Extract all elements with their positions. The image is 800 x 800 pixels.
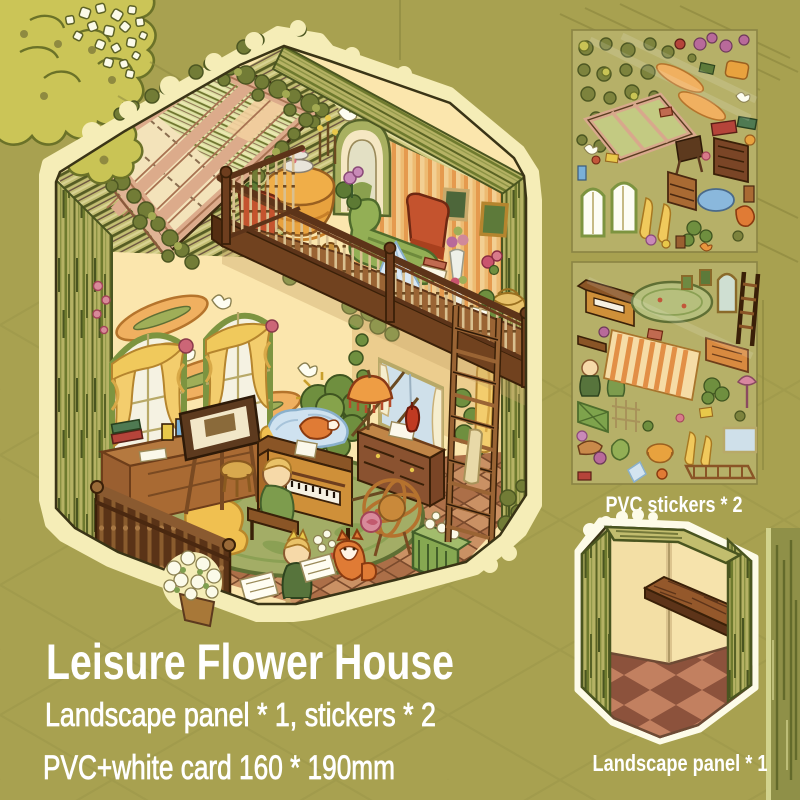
svg-text:Landscape panel * 1: Landscape panel * 1 <box>593 750 768 776</box>
svg-text:Leisure Flower House: Leisure Flower House <box>46 634 454 690</box>
svg-text:PVC+white card 160 * 190mm: PVC+white card 160 * 190mm <box>43 749 395 787</box>
svg-text:Landscape panel * 1, stickers: Landscape panel * 1, stickers * 2 <box>45 696 436 733</box>
